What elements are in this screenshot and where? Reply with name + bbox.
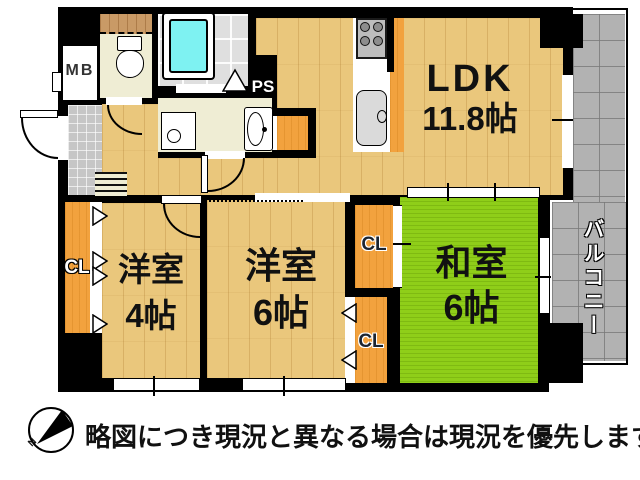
- toilet-bowl-icon: [116, 50, 144, 78]
- ldk-room-label: LDK: [395, 60, 545, 98]
- vanity-faucet-dot: [262, 127, 267, 132]
- bathtub-water: [169, 19, 208, 73]
- floorplan-canvas: MB PS LDK 11.8帖 和室 6帖 洋室 6帖 洋室 4帖 CL CL …: [0, 0, 640, 480]
- burner-icon: [360, 36, 370, 46]
- washitsu-sliding-door: [407, 187, 540, 198]
- washitsu-size-label: 6帖: [405, 290, 538, 326]
- toilet-tank-icon: [117, 36, 142, 51]
- yoshitsu6-room-label: 洋室: [212, 248, 350, 284]
- yoshitsu6-size-label: 6帖: [212, 295, 350, 331]
- stove-icon: [356, 18, 387, 59]
- sliding-door-tick: [494, 183, 496, 201]
- closet-south-label: CL: [353, 332, 389, 351]
- burner-icon: [373, 36, 383, 46]
- yoshitsu6-opening-dotted-line: [202, 200, 303, 202]
- hall-storage-wall-bottom: [277, 150, 316, 158]
- closet-north-label: CL: [355, 235, 393, 254]
- disclaimer-text: 略図につき現況と異なる場合は現況を優先します: [85, 417, 637, 454]
- meter-box-label: MB: [63, 63, 97, 79]
- entrance-door-leaf: [20, 110, 58, 118]
- hall-storage: [277, 116, 308, 150]
- yoshitsu4-door-leaf: [161, 195, 202, 204]
- burner-icon: [360, 22, 370, 32]
- window-tick: [283, 376, 285, 396]
- balcony-label: バルコニー: [573, 198, 603, 358]
- window-tick: [153, 376, 155, 396]
- closet-west-door-arrow-icon: [92, 206, 108, 226]
- entrance-door-swing: [21, 118, 58, 159]
- washing-machine-drum-icon: [167, 129, 181, 143]
- toilet-door-gap: [106, 97, 142, 105]
- closet-north-door: [393, 205, 402, 288]
- burner-icon: [373, 22, 383, 32]
- bathroom-folding-door-icon: [222, 68, 248, 93]
- yoshitsu4-size-label: 4帖: [103, 299, 199, 332]
- yoshitsu6-floor: [207, 200, 345, 378]
- ldk-floor-nook: [256, 18, 277, 57]
- closet-west-label: CL: [62, 258, 92, 277]
- pipe-space-label: PS: [246, 78, 280, 95]
- window-south-yoshitsu4: [113, 378, 200, 391]
- washitsu-room-label: 和室: [405, 245, 538, 281]
- kitchen-partition-wall: [387, 18, 394, 72]
- faucet-icon: [377, 110, 387, 123]
- entrance-door-gap: [58, 116, 68, 160]
- bathroom-door-gap: [176, 84, 226, 93]
- ldk-size-label: 11.8帖: [395, 102, 545, 135]
- sliding-door-tick: [447, 183, 449, 201]
- toilet-shelf: [100, 14, 152, 34]
- closet-south-door-arrow-icon: [341, 350, 357, 370]
- corner-wall-northeast: [540, 14, 583, 48]
- washroom-door-leaf: [201, 155, 208, 193]
- meter-box-tab: [52, 72, 62, 92]
- window-tick: [552, 119, 573, 121]
- yoshitsu4-room-label: 洋室: [103, 253, 199, 286]
- entrance-steps: [95, 172, 127, 196]
- window-south-yoshitsu6: [242, 378, 346, 391]
- window-east-ldk: [562, 75, 573, 168]
